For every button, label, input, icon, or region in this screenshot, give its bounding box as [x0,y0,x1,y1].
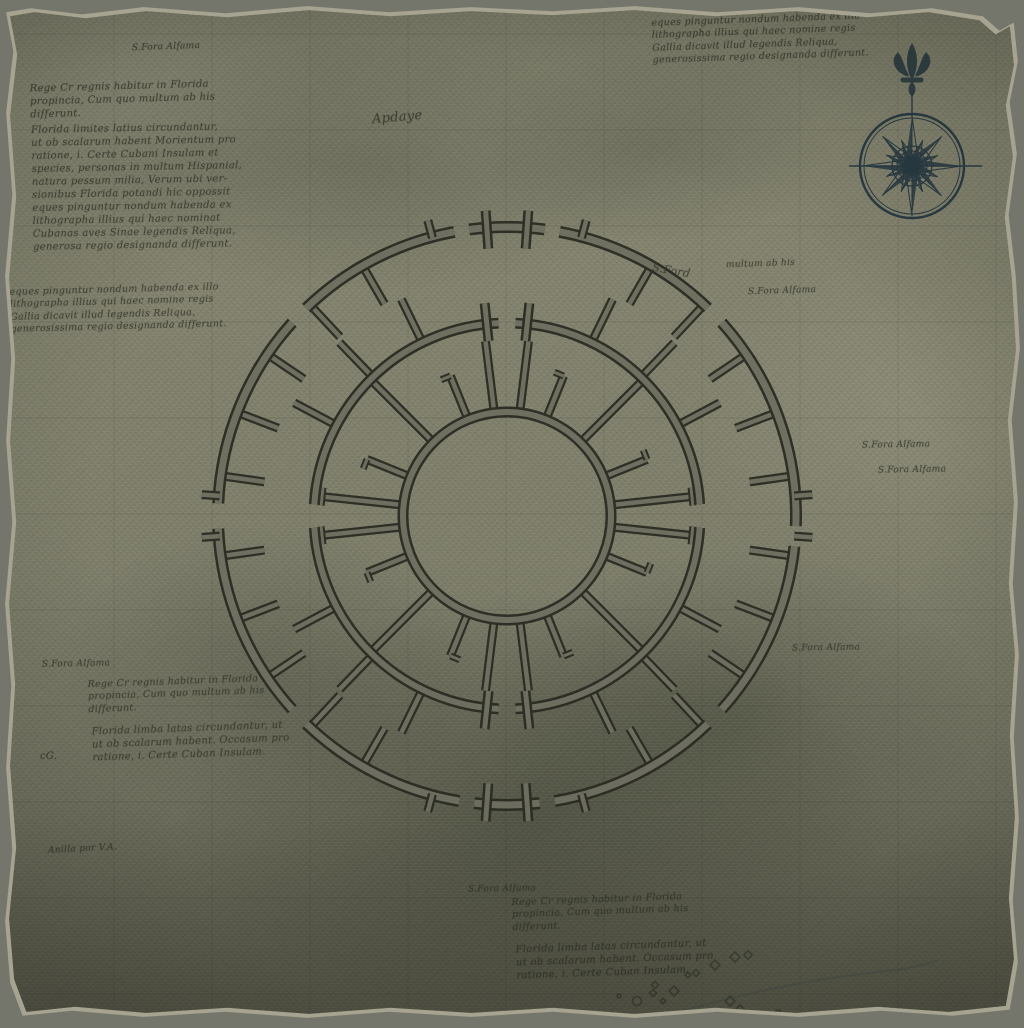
handwritten-line: generosa regio designanda differunt. [33,237,244,254]
block-top-left-1: Rege Cr regnis habitur in Floridapropinc… [30,78,216,122]
block-midleft-low-2: Florida limba latas circundantur, utut o… [91,719,290,765]
map-label-8: S.Fora Alfama [42,658,110,671]
map-label-4: S.Ford [651,261,691,282]
block-midleft-low-1: Rege Cr regnis habitur in Floridapropinc… [87,673,265,716]
map-label-1: Apdaye [371,108,423,129]
map-label-11: cG. [40,750,57,763]
block-top-left-2: Florida limites latius circundantur,ut o… [31,120,244,254]
block-bottom-2: Florida limba latas circundantur, utut o… [515,937,714,983]
map-label-6: S.Fora Alfama [878,464,946,477]
map-annotations: eques pinguntur nondum habenda ex illoli… [4,4,1020,1020]
map-label-5: S.Fora Alfama [862,439,930,452]
map-label-9: S.Fora Alfama [468,883,536,896]
block-top-right: eques pinguntur nondum habenda ex illoli… [651,10,869,67]
map-label-7: S.Fora Alfama [792,642,860,655]
map-label-3: S.Fora Alfama [748,285,817,299]
block-bottom-1: Rege Cr regnis habitur in Floridapropinc… [511,891,689,934]
map-label-10: Anilla por V.A. [48,842,118,857]
map-label-2: multum ab his [726,258,796,272]
parchment: D eques pinguntur nondum habenda ex illo… [4,4,1020,1020]
block-left-mid: eques pinguntur nondum habenda ex illoli… [9,281,226,336]
map-sheet: D eques pinguntur nondum habenda ex illo… [0,0,1024,1024]
map-label-0: S.Fora Alfama [132,41,201,55]
